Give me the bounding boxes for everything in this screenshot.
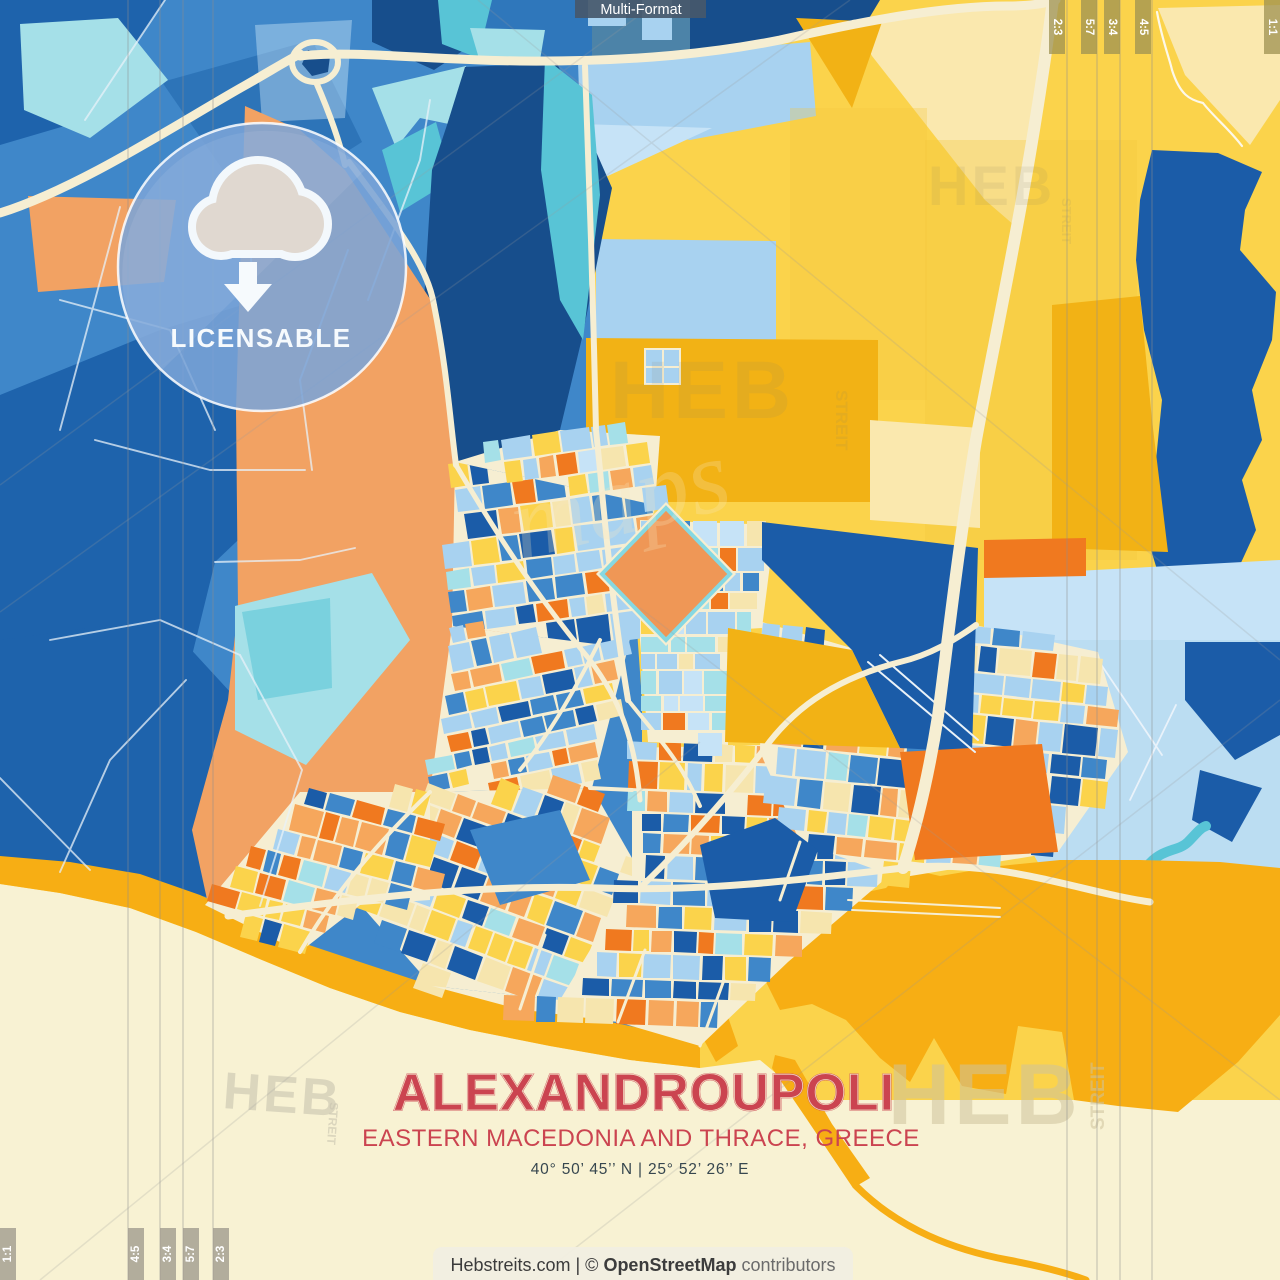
svg-text:LICENSABLE: LICENSABLE bbox=[170, 323, 351, 353]
svg-text:2:3: 2:3 bbox=[1051, 19, 1063, 36]
svg-text:5:7: 5:7 bbox=[185, 1246, 197, 1263]
svg-text:STREIT: STREIT bbox=[832, 390, 851, 451]
svg-text:STREIT: STREIT bbox=[1088, 1062, 1109, 1130]
svg-text:4:5: 4:5 bbox=[130, 1245, 142, 1262]
svg-text:1:1: 1:1 bbox=[1266, 19, 1278, 36]
svg-text:EASTERN MACEDONIA AND THRACE,: EASTERN MACEDONIA AND THRACE, GREECE bbox=[362, 1125, 920, 1152]
svg-text:2:3: 2:3 bbox=[215, 1246, 227, 1263]
svg-text:HEB: HEB bbox=[221, 1062, 344, 1128]
svg-text:1:1: 1:1 bbox=[2, 1245, 14, 1262]
svg-text:HEB: HEB bbox=[928, 154, 1055, 217]
svg-text:ALEXANDROUPOLI: ALEXANDROUPOLI bbox=[393, 1064, 895, 1122]
svg-text:4:5: 4:5 bbox=[1137, 19, 1149, 36]
svg-text:Hebstreits.com | © OpenStreetM: Hebstreits.com | © OpenStreetMap contrib… bbox=[450, 1255, 835, 1275]
svg-text:3:4: 3:4 bbox=[162, 1245, 174, 1262]
svg-text:3:4: 3:4 bbox=[1106, 19, 1118, 36]
svg-text:Multi-Format: Multi-Format bbox=[600, 2, 681, 18]
svg-text:5:7: 5:7 bbox=[1083, 19, 1095, 36]
svg-text:40° 50’ 45’’ N | 25° 52’: 40° 50’ 45’’ N | 25° 52’ 26’’ E bbox=[531, 1161, 749, 1178]
